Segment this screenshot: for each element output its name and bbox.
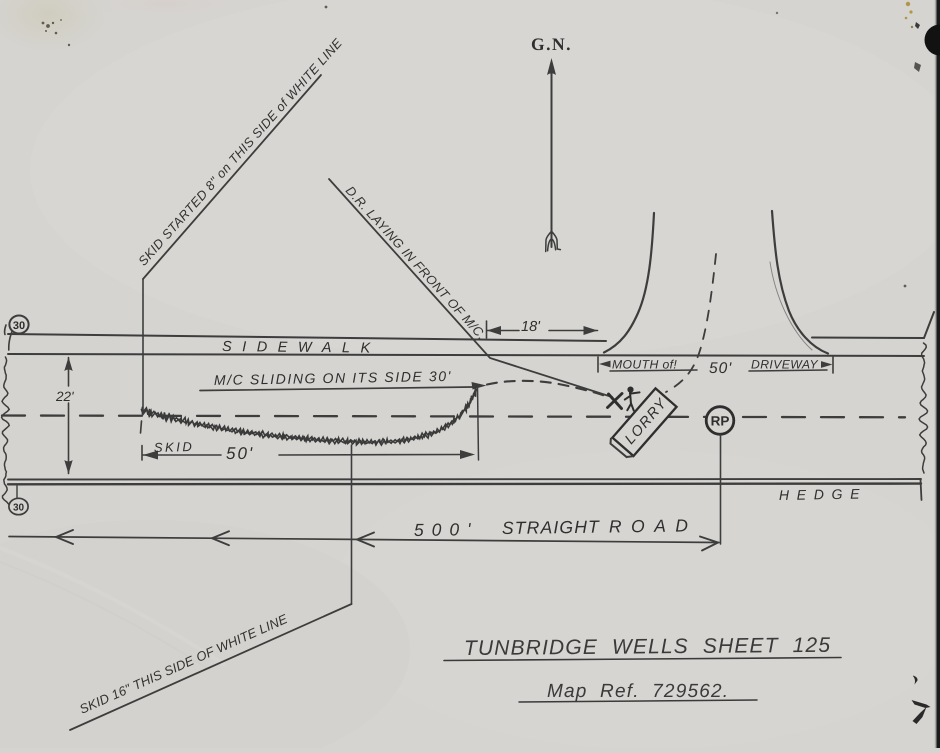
svg-text:ROAD: ROAD (609, 515, 698, 536)
svg-text:RP: RP (711, 414, 730, 429)
svg-text:STRAIGHT: STRAIGHT (502, 517, 600, 538)
svg-text:TUNBRIDGE WELLS SHEET 125: TUNBRIDGE WELLS SHEET 125 (464, 634, 831, 660)
svg-text:SKID: SKID (154, 439, 195, 455)
svg-text:HEDGE: HEDGE (779, 485, 868, 503)
svg-text:Map Ref. 729562.: Map Ref. 729562. (547, 681, 729, 702)
svg-text:22': 22' (55, 389, 74, 404)
svg-text:18': 18' (521, 319, 541, 335)
svg-text:MOUTH of!: MOUTH of! (612, 358, 677, 372)
svg-text:30: 30 (13, 503, 25, 514)
svg-text:500': 500' (414, 519, 479, 540)
svg-text:50': 50' (709, 360, 732, 377)
svg-text:DRIVEWAY: DRIVEWAY (751, 358, 819, 372)
svg-text:50': 50' (226, 444, 254, 463)
svg-text:SIDEWALK: SIDEWALK (222, 339, 381, 357)
svg-text:G.N.: G.N. (531, 34, 572, 54)
svg-text:30: 30 (13, 320, 25, 332)
